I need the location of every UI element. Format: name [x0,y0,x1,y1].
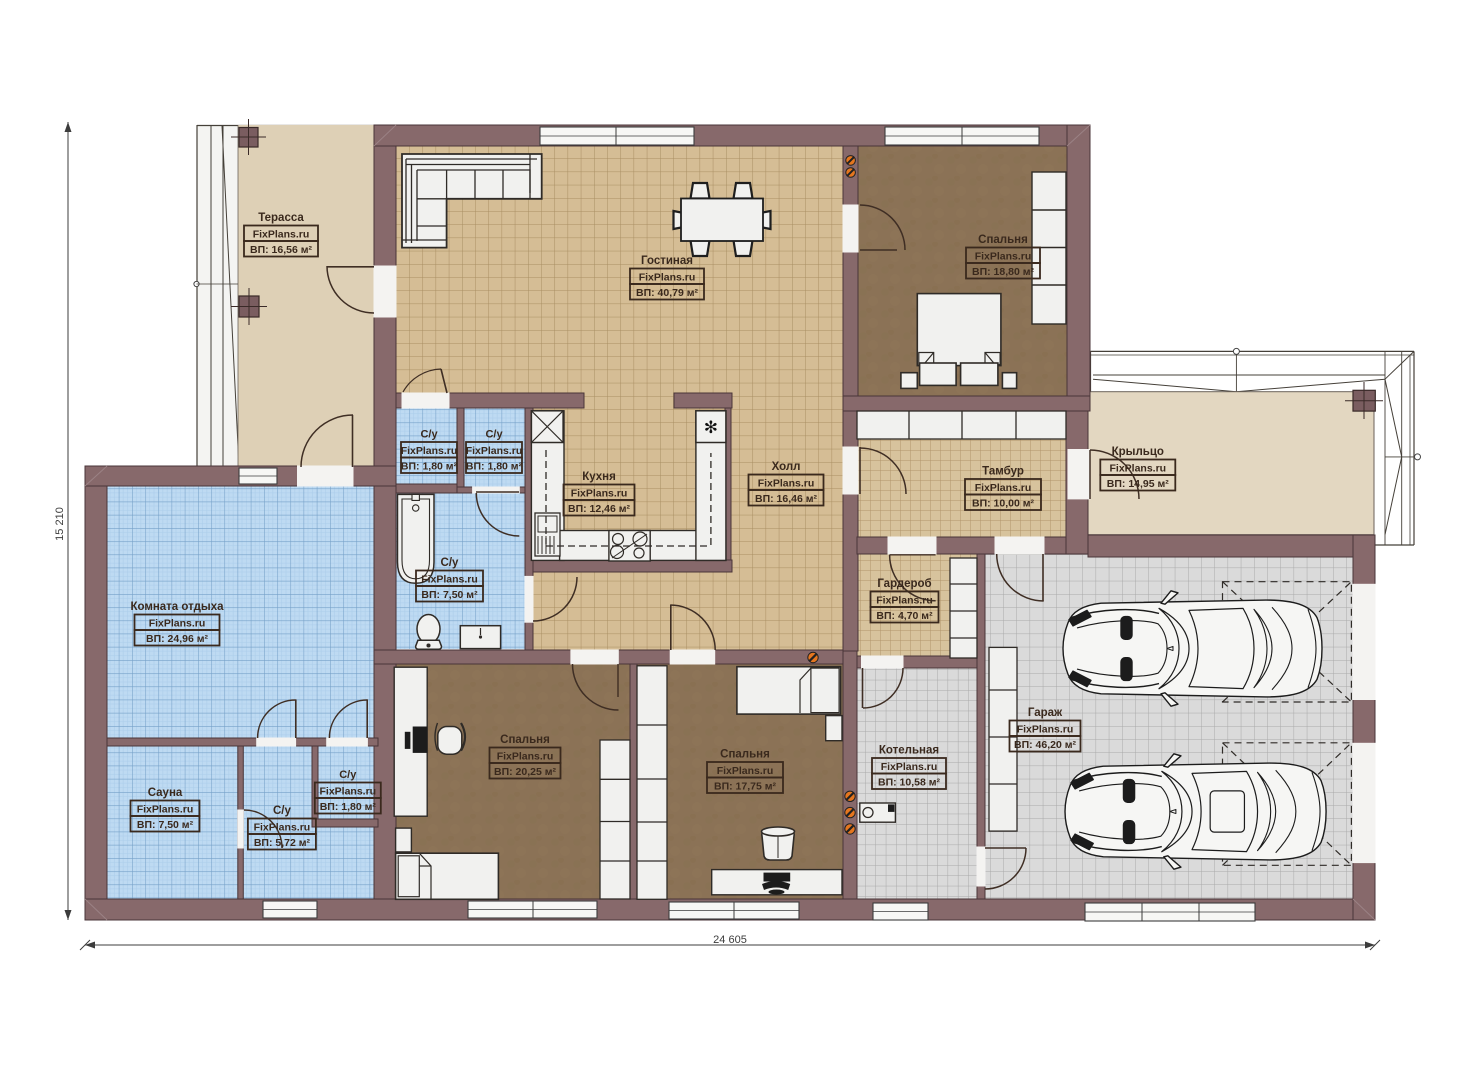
svg-text:Гостиная: Гостиная [641,255,693,267]
svg-text:ВП: 18,80 м²: ВП: 18,80 м² [972,266,1035,278]
svg-text:Терасса: Терасса [258,212,304,224]
svg-text:✻: ✻ [704,418,718,437]
svg-text:ВП: 7,50 м²: ВП: 7,50 м² [137,819,194,831]
svg-text:Гараж: Гараж [1028,707,1063,719]
svg-text:Спальня: Спальня [500,734,550,746]
svg-text:ВП: 5,72 м²: ВП: 5,72 м² [254,837,311,849]
svg-text:ВП: 20,25 м²: ВП: 20,25 м² [494,766,557,778]
svg-text:FixPlans.ru: FixPlans.ru [466,445,523,457]
svg-text:С/у: С/у [339,769,357,781]
svg-text:Холл: Холл [772,461,801,473]
svg-text:FixPlans.ru: FixPlans.ru [876,594,933,606]
svg-text:Котельная: Котельная [879,745,939,757]
svg-text:С/у: С/у [441,557,460,569]
svg-text:FixPlans.ru: FixPlans.ru [497,750,554,762]
svg-text:ВП: 1,80 м²: ВП: 1,80 м² [401,460,458,472]
svg-text:15 210: 15 210 [54,507,66,541]
svg-text:FixPlans.ru: FixPlans.ru [319,785,376,797]
svg-text:FixPlans.ru: FixPlans.ru [1017,723,1074,735]
svg-text:ВП: 24,96 м²: ВП: 24,96 м² [146,633,209,645]
svg-text:Тамбур: Тамбур [982,466,1024,478]
svg-text:ВП: 4,70 м²: ВП: 4,70 м² [876,610,933,622]
svg-text:ВП: 16,46 м²: ВП: 16,46 м² [755,493,818,505]
svg-text:Сауна: Сауна [148,787,183,799]
svg-text:FixPlans.ru: FixPlans.ru [758,477,815,489]
svg-text:Крыльцо: Крыльцо [1112,446,1164,458]
svg-text:FixPlans.ru: FixPlans.ru [421,573,478,585]
svg-text:С/у: С/у [273,805,292,817]
svg-text:ВП: 1,80 м²: ВП: 1,80 м² [320,801,377,813]
svg-text:Кухня: Кухня [582,471,616,483]
svg-text:ВП: 12,46 м²: ВП: 12,46 м² [568,503,631,515]
svg-text:FixPlans.ru: FixPlans.ru [571,487,628,499]
svg-text:Гардероб: Гардероб [877,578,931,590]
svg-text:Спальня: Спальня [720,749,770,761]
svg-text:ВП: 46,20 м²: ВП: 46,20 м² [1014,739,1077,751]
svg-text:FixPlans.ru: FixPlans.ru [975,250,1032,262]
svg-text:ВП: 7,50 м²: ВП: 7,50 м² [421,589,478,601]
svg-text:FixPlans.ru: FixPlans.ru [717,765,774,777]
svg-text:24 605: 24 605 [713,934,747,946]
svg-text:ВП: 1,80 м²: ВП: 1,80 м² [466,460,523,472]
svg-text:FixPlans.ru: FixPlans.ru [253,228,310,240]
svg-text:Спальня: Спальня [978,234,1028,246]
svg-text:С/у: С/у [485,429,503,441]
svg-text:FixPlans.ru: FixPlans.ru [401,445,458,457]
svg-text:FixPlans.ru: FixPlans.ru [881,761,938,773]
svg-text:FixPlans.ru: FixPlans.ru [137,803,194,815]
svg-text:ВП: 10,00 м²: ВП: 10,00 м² [972,497,1035,509]
svg-text:ВП: 10,58 м²: ВП: 10,58 м² [878,776,941,788]
svg-text:ВП: 16,56 м²: ВП: 16,56 м² [250,244,313,256]
svg-text:С/у: С/у [420,429,438,441]
svg-text:ВП: 14,95 м²: ВП: 14,95 м² [1107,478,1170,490]
svg-text:FixPlans.ru: FixPlans.ru [149,617,206,629]
svg-text:FixPlans.ru: FixPlans.ru [975,482,1032,494]
svg-text:FixPlans.ru: FixPlans.ru [1109,462,1166,474]
svg-text:FixPlans.ru: FixPlans.ru [254,821,311,833]
svg-text:ВП: 40,79 м²: ВП: 40,79 м² [636,287,699,299]
svg-text:Комната отдыха: Комната отдыха [130,601,224,613]
svg-text:FixPlans.ru: FixPlans.ru [639,271,696,283]
svg-text:ВП: 17,75 м²: ВП: 17,75 м² [714,780,777,792]
